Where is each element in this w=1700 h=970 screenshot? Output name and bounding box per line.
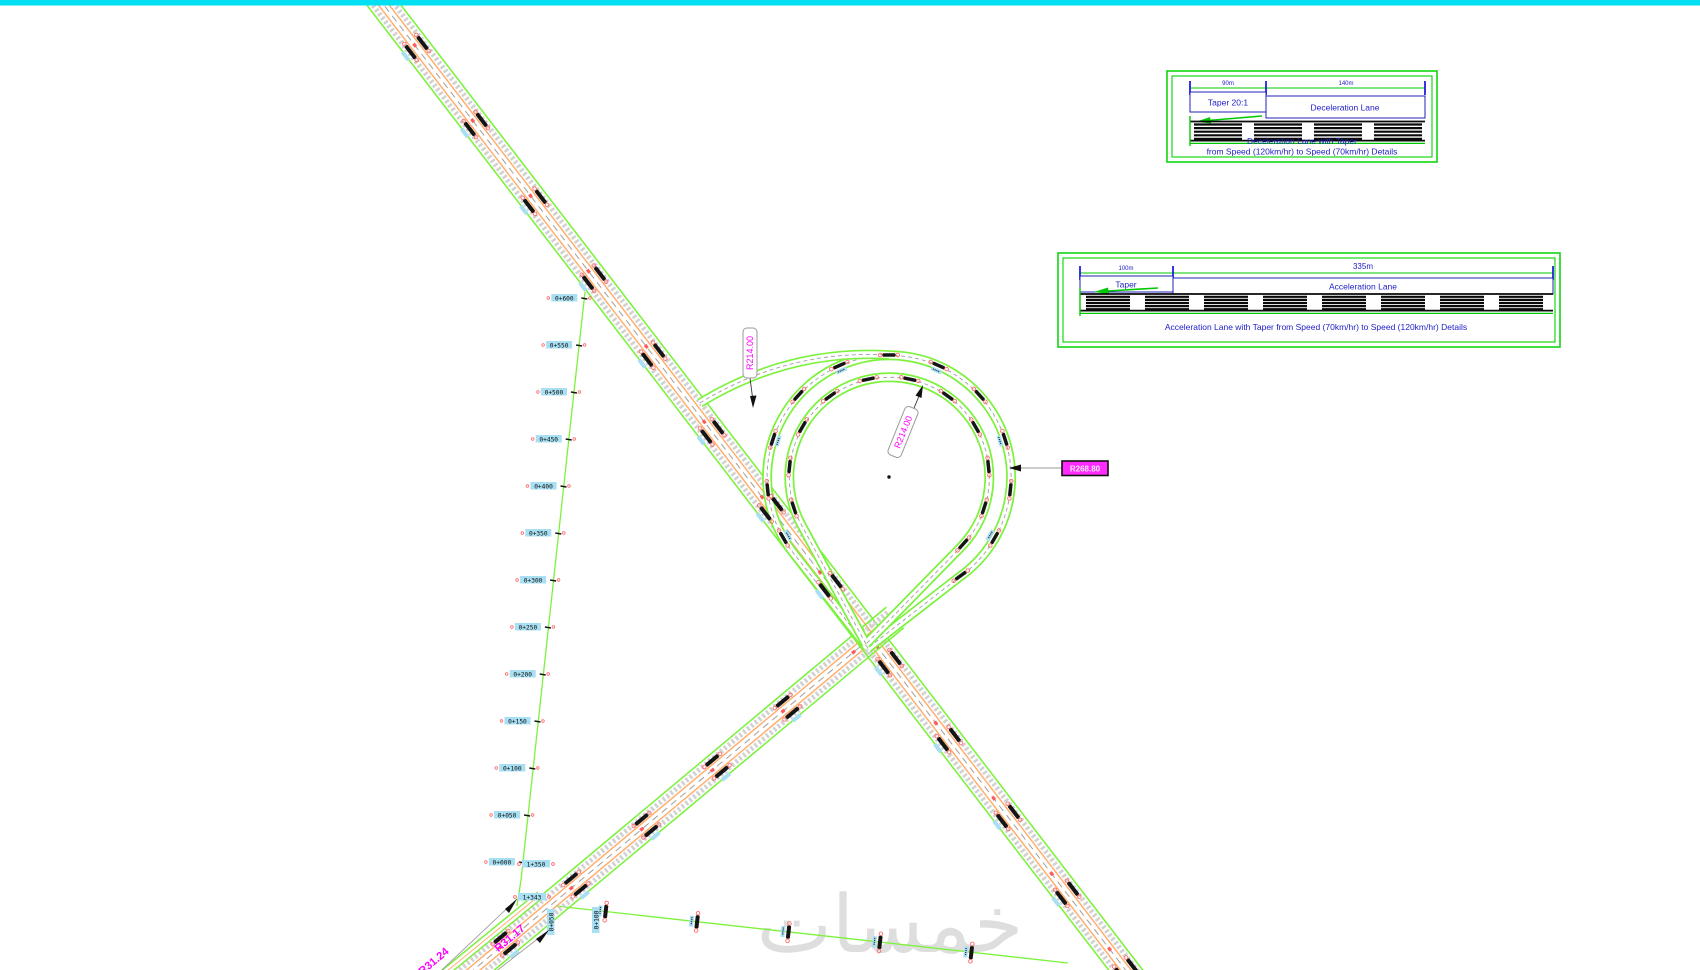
left-station-line [517,292,585,906]
left-line-station-label: 0+000 [493,859,512,866]
left-line-station-label: 0+500 [545,389,564,396]
radius-label-loop-top: R214.00 [743,328,757,408]
left-line-station-label: 0+100 [503,765,522,772]
leader-arrowhead-icon [750,396,757,409]
station-tick-marker [702,751,723,769]
radius-label-loop-inner: R214.00 [887,385,923,459]
deceleration-detail-box: 90m 140m Taper 20:1 Deceleration Lane De… [1167,71,1437,162]
radius-value: R214.00 [745,336,755,370]
station-tick-marker [532,186,550,207]
left-line-station-label: 0+350 [529,530,548,537]
left-line-station-label: 0+600 [555,295,574,302]
station-tick-marker [561,869,582,887]
left-line-station-label: 0+550 [550,342,569,349]
detail-caption: Acceleration Lane with Taper from Speed … [1165,322,1467,332]
dim-lane-length: 140m [1338,81,1353,87]
loop-center-point [887,475,890,478]
lane-cell-label: Acceleration Lane [1329,282,1397,292]
dim-taper-length: 100m [1118,266,1133,272]
loop-outer-ring [767,355,1011,648]
left-line-station-label: 0+450 [539,436,558,443]
detail-caption-line1: Deceleration Lane with Taper [1247,136,1357,146]
dim-lane-length: 335m [1353,262,1373,271]
taper-cell-label: Taper 20:1 [1208,98,1248,108]
khamsat-watermark: خمسات [757,880,1024,969]
station-tick-marker [650,340,668,361]
radius-label-highlighted: R268.80 [1009,461,1108,476]
detail-caption-line2: from Speed (120km/hr) to Speed (70km/hr)… [1207,147,1398,157]
taper-direction-arrow-icon [1202,116,1262,121]
cad-viewport[interactable]: خمسات [0,0,1700,970]
dim-taper-length: 90m [1222,81,1234,87]
top-cyan-bar [0,0,1700,6]
leader-arrowhead-icon [536,930,549,943]
taper-cell-label: Taper [1115,280,1136,290]
lane-cell-label: Deceleration Lane [1311,103,1380,113]
left-line-station-label: 0+300 [524,577,543,584]
left-line-station-label: 0+200 [513,671,532,678]
main-highway [345,0,1171,970]
left-line-station-label: 0+050 [498,812,517,819]
left-line-station-label: 0+250 [519,624,538,631]
loop-inner-ring [789,377,989,644]
radius-value-highlighted: R268.80 [1070,465,1101,474]
junction-station-label: 1+350 [527,862,546,869]
bottom-line-station-label: 0+050 [548,912,555,931]
bottom-line-station-label: 0+100 [593,910,600,929]
acceleration-detail-box: 100m 335m Taper Acceleration Lane Accele… [1058,253,1560,347]
left-line-station-label: 0+150 [508,718,527,725]
junction-station-label: 1+343 [523,895,542,902]
station-tick-marker [879,353,900,357]
cad-drawing-stage: خمسات [0,0,1700,970]
left-line-station-label: 0+400 [534,483,553,490]
